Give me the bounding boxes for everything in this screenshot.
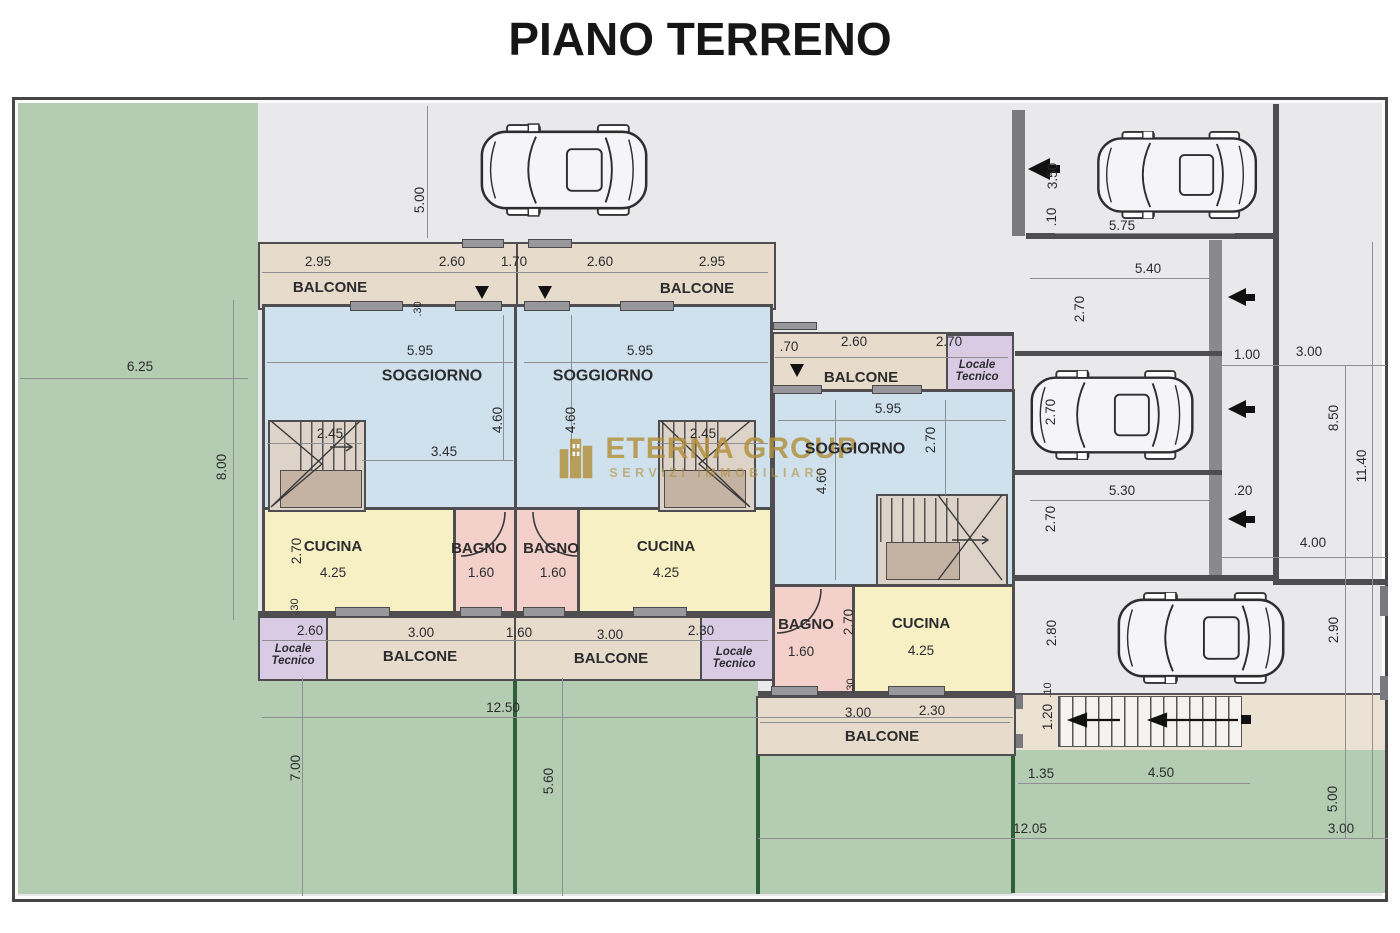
dim-label-2-70: 2.70 xyxy=(1073,296,1087,322)
dim-label-2-30: 2.30 xyxy=(919,704,945,718)
dim-label-2-70: 2.70 xyxy=(1044,399,1058,425)
stall-arrow-left-icon xyxy=(1246,294,1255,301)
ramp-hatch xyxy=(1058,696,1242,747)
room-label-cucina: CUCINA xyxy=(304,539,362,555)
wall-pillar xyxy=(1015,695,1023,709)
dim-label-1-60: 1.60 xyxy=(468,566,494,580)
balcony-apartment2-top xyxy=(516,242,776,310)
door-threshold xyxy=(633,607,687,617)
dimension-line xyxy=(262,272,768,273)
dim-label-30: .30 xyxy=(846,678,858,693)
dim-label-2-30: 2.30 xyxy=(688,624,714,638)
bagno-apartment1 xyxy=(453,507,520,619)
floor-plan-sheet: PIANO TERRENO xyxy=(0,0,1400,933)
stall-arrow-left-icon xyxy=(1228,400,1246,418)
dim-label-5-30: 5.30 xyxy=(1109,484,1135,498)
garden-left xyxy=(18,103,258,894)
dim-label-4-60: 4.60 xyxy=(491,407,505,433)
wall xyxy=(1273,579,1388,585)
door-threshold xyxy=(524,301,570,311)
dim-label-1-60: 1.60 xyxy=(540,566,566,580)
wall-pillar xyxy=(1012,110,1025,236)
entry-arrow-down-icon xyxy=(538,286,552,299)
dim-label-4-25: 4.25 xyxy=(653,566,679,580)
dim-label-11-40: 11.40 xyxy=(1355,450,1369,483)
dim-label-5-95: 5.95 xyxy=(407,344,433,358)
room-label-balcone: BALCONE xyxy=(660,281,734,297)
door-threshold xyxy=(528,239,572,248)
dim-label-2-80: 2.80 xyxy=(1045,620,1059,646)
dim-label-1-00: 1.00 xyxy=(1234,348,1260,362)
room-label-cucina: CUCINA xyxy=(637,539,695,555)
bagno-apartment2 xyxy=(514,507,583,619)
dimension-line xyxy=(760,722,1010,723)
dim-label-5-75: 5.75 xyxy=(1109,219,1135,233)
dim-label-12-05: 12.05 xyxy=(1013,822,1047,836)
dim-label-2-45: 2.45 xyxy=(317,427,343,441)
dimension-line xyxy=(524,362,768,363)
room-label-locale-tecnico: Locale Tecnico xyxy=(712,646,755,670)
dimension-line xyxy=(302,678,303,896)
dim-label-2-95: 2.95 xyxy=(305,255,331,269)
dim-label-2-60: 2.60 xyxy=(439,255,465,269)
door-threshold xyxy=(335,607,390,617)
door-threshold xyxy=(620,301,674,311)
stall-arrow-left-icon xyxy=(1246,406,1255,413)
dimension-line xyxy=(562,678,563,896)
dimension-line xyxy=(262,640,768,641)
balcony-apartment2-bottom xyxy=(514,616,706,681)
dim-label-2-90: 2.90 xyxy=(1327,617,1341,643)
dim-label-2-70: 2.70 xyxy=(842,609,856,635)
dim-label-5-60: 5.60 xyxy=(542,768,556,794)
room-label-bagno: BAGNO xyxy=(778,617,834,633)
dimension-line xyxy=(1222,557,1386,558)
stairs-apartment3 xyxy=(876,494,1008,586)
room-label-soggiorno: SOGGIORNO xyxy=(553,369,653,386)
dimension-line xyxy=(758,838,1388,839)
dimension-line xyxy=(778,420,1006,421)
dimension-line xyxy=(1372,242,1373,838)
buildings-logo-icon xyxy=(558,430,597,482)
dim-label-2-95: 2.95 xyxy=(699,255,725,269)
dim-label-1-35: 1.35 xyxy=(1028,767,1054,781)
dim-label-5-00: 5.00 xyxy=(413,187,427,213)
cucina-apartment2 xyxy=(577,507,773,619)
wall xyxy=(1015,351,1222,356)
dim-label-3-00: 3.00 xyxy=(1328,822,1354,836)
dim-label-3-00: 3.00 xyxy=(1296,345,1322,359)
door-threshold xyxy=(771,686,818,696)
dim-label-1-60: 1.60 xyxy=(788,645,814,659)
door-threshold xyxy=(872,385,922,394)
balcony-apartment1-top xyxy=(258,242,518,310)
dimension-line xyxy=(20,378,248,379)
dim-label-30: .30 xyxy=(413,301,425,316)
entry-arrow-down-icon xyxy=(475,286,489,299)
door-threshold xyxy=(462,239,504,248)
dim-label-3-00: 3.00 xyxy=(845,706,871,720)
entry-arrow-down-icon xyxy=(790,364,804,377)
dimension-line xyxy=(267,443,362,444)
dim-label-2-45: 2.45 xyxy=(690,427,716,441)
dim-label-3-45: 3.45 xyxy=(431,445,457,459)
dim-label-10: .10 xyxy=(1043,682,1055,697)
room-label-bagno: BAGNO xyxy=(523,541,579,557)
door-threshold xyxy=(455,301,502,311)
wall-pillar xyxy=(1380,586,1388,616)
wall-pillar xyxy=(1209,240,1222,575)
dim-label-8-00: 8.00 xyxy=(215,454,229,480)
dim-label-30: .30 xyxy=(290,598,302,613)
dimension-line xyxy=(233,300,234,620)
dim-label-2-70: 2.70 xyxy=(936,335,962,349)
dim-label-2-60: 2.60 xyxy=(841,335,867,349)
dim-label-2-70: 2.70 xyxy=(1044,506,1058,532)
garden-divider xyxy=(756,747,760,894)
ramp-arrow-icon xyxy=(1241,715,1251,724)
door-threshold xyxy=(772,385,822,394)
dimension-line xyxy=(775,357,1008,358)
room-label-balcone: BALCONE xyxy=(824,370,898,386)
stall-arrow-left-icon xyxy=(1228,288,1246,306)
dim-label-4-25: 4.25 xyxy=(908,644,934,658)
wall xyxy=(1015,470,1222,475)
dimension-line xyxy=(427,106,428,238)
stall-arrow-left-icon xyxy=(1228,510,1246,528)
door-threshold xyxy=(523,607,565,617)
dim-label-5-40: 5.40 xyxy=(1135,262,1161,276)
dim-label-70: .70 xyxy=(780,340,799,354)
page-title: PIANO TERRENO xyxy=(0,12,1400,66)
room-label-balcone: BALCONE xyxy=(293,280,367,296)
dimension-line xyxy=(945,400,946,495)
dimension-line xyxy=(835,400,836,580)
dim-label-4-00: 4.00 xyxy=(1300,536,1326,550)
wall-pillar xyxy=(1380,676,1388,700)
dim-label-12-50: 12.50 xyxy=(486,701,520,715)
room-label-locale-tecnico: Locale Tecnico xyxy=(955,359,998,383)
dimension-line xyxy=(1345,365,1346,838)
dim-label-6-25: 6.25 xyxy=(127,360,153,374)
dim-label-2-60: 2.60 xyxy=(587,255,613,269)
dim-label-5-95: 5.95 xyxy=(875,402,901,416)
wall-pillar xyxy=(1015,734,1023,748)
door-threshold xyxy=(773,322,817,330)
wall xyxy=(1273,104,1279,582)
dim-label-1-60: 1.60 xyxy=(506,626,532,640)
dim-label-5-00: 5.00 xyxy=(1326,786,1340,812)
dim-label-2-70: 2.70 xyxy=(924,427,938,453)
dim-label-3-00: 3.00 xyxy=(597,628,623,642)
dimension-line xyxy=(1030,500,1210,501)
dim-label-3-00: 3.00 xyxy=(408,626,434,640)
dimension-line xyxy=(1030,278,1210,279)
dimension-line xyxy=(262,717,1013,718)
dimension-line xyxy=(1018,783,1250,784)
balcony-apartment3-bottom xyxy=(756,696,1016,756)
room-label-balcone: BALCONE xyxy=(574,651,648,667)
dimension-line xyxy=(1055,233,1235,234)
dimension-line xyxy=(503,315,504,460)
room-label-soggiorno: SOGGIORNO xyxy=(382,369,482,386)
dim-label-5-95: 5.95 xyxy=(627,344,653,358)
room-label-bagno: BAGNO xyxy=(451,541,507,557)
dim-label-2-60: 2.60 xyxy=(297,624,323,638)
door-threshold xyxy=(888,686,945,696)
dim-label-4-50: 4.50 xyxy=(1148,766,1174,780)
garden-apartment3 xyxy=(758,747,1013,894)
wall xyxy=(1015,575,1279,581)
dim-label-4-60: 4.60 xyxy=(815,468,829,494)
dimension-line xyxy=(362,460,513,461)
room-label-soggiorno: SOGGIORNO xyxy=(805,442,905,459)
dim-label-4-25: 4.25 xyxy=(320,566,346,580)
stall-arrow-left-icon xyxy=(1246,516,1255,523)
dim-label-10: .10 xyxy=(1045,208,1059,227)
dim-label-3-50: 3.50 xyxy=(1046,163,1060,189)
room-label-locale-tecnico: Locale Tecnico xyxy=(271,643,314,667)
room-label-cucina: CUCINA xyxy=(892,616,950,632)
door-threshold xyxy=(460,607,502,617)
door-threshold xyxy=(350,301,403,311)
room-label-balcone: BALCONE xyxy=(845,729,919,745)
room-label-balcone: BALCONE xyxy=(383,649,457,665)
dim-label-7-00: 7.00 xyxy=(289,755,303,781)
dim-label-2-70: 2.70 xyxy=(290,538,304,564)
dim-label-1-70: 1.70 xyxy=(501,255,527,269)
dimension-line xyxy=(1222,365,1386,366)
dim-label-4-60: 4.60 xyxy=(564,407,578,433)
dim-label-8-50: 8.50 xyxy=(1327,405,1341,431)
dim-label-1-20: 1.20 xyxy=(1041,704,1055,730)
dim-label-20: .20 xyxy=(1234,484,1253,498)
dimension-line xyxy=(267,362,513,363)
